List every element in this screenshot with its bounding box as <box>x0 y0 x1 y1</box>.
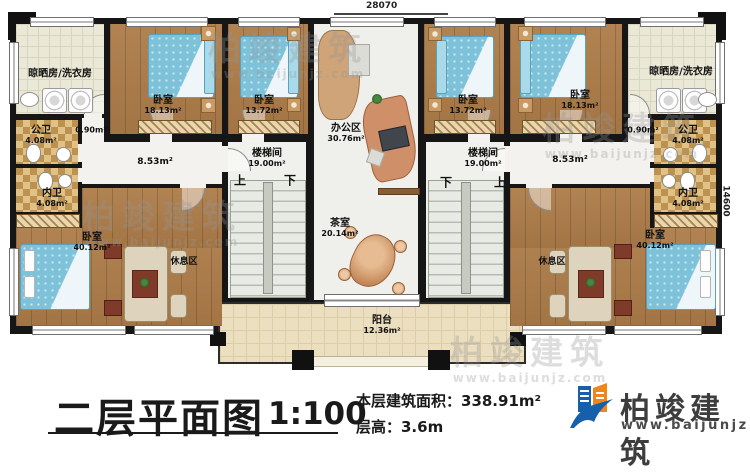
room-label-bedroom-18-left: 卧室 18.13m² <box>144 95 181 115</box>
room-label-master-right: 卧室 40.12m² <box>636 230 673 250</box>
window <box>134 325 214 335</box>
window <box>9 42 19 104</box>
floor-plan-page: { "dimensions": { "top_width": "28070", … <box>0 0 750 444</box>
window <box>30 17 94 27</box>
laundry-sink-icon <box>20 92 39 107</box>
brand-logo-icon <box>566 378 616 438</box>
room-label-balcony: 阳台 12.36m² <box>363 315 400 335</box>
closet-right <box>654 214 718 228</box>
room-label-public-bath-left: 公卫 4.08m² <box>25 125 57 145</box>
tv-cabinet-icon <box>614 244 632 259</box>
room-label-laundry-right: 晾晒房/洗衣房 <box>649 66 713 78</box>
nightstand-icon <box>428 27 442 41</box>
room-label-master-left: 卧室 40.12m² <box>73 232 110 252</box>
window <box>238 17 300 27</box>
door-opening <box>84 114 102 118</box>
room-label-inner-bath-right: 内卫 4.08m² <box>672 188 704 208</box>
bath-sink-icon <box>58 174 72 188</box>
washing-machine-icon <box>42 88 67 113</box>
stair-down-label: 下 <box>440 174 452 191</box>
room-label-office: 办公区 30.76m² <box>327 123 364 143</box>
room-label-rest-right: 休息区 <box>538 257 565 267</box>
wardrobe-icon <box>238 120 300 134</box>
dimension-top: 28070 <box>366 1 397 11</box>
plant-icon <box>586 278 595 287</box>
bed-pillow <box>24 276 35 298</box>
window <box>434 17 496 27</box>
plan-title: 二层平面图 <box>54 386 264 444</box>
room-label-laundry-left: 晾晒房/洗衣房 <box>28 68 92 80</box>
room-label-hall-left: 8.53m² <box>137 158 173 168</box>
tv-cabinet-icon <box>614 300 632 316</box>
window <box>330 17 404 27</box>
room-label-vestibule-right: 0.90m² <box>627 127 659 136</box>
floor-height-text: 层高：3.6m <box>356 416 443 437</box>
stair-up-label: 上 <box>234 172 246 189</box>
watermark: 柏竣建筑 www.baijunjz.com <box>420 336 640 387</box>
tv-cabinet-icon <box>104 300 122 316</box>
bed-pillow <box>700 250 711 272</box>
armchair-icon <box>170 294 187 318</box>
toilet-icon <box>26 144 41 163</box>
laundry-sink-icon <box>698 92 717 107</box>
column <box>292 350 314 370</box>
door-opening <box>242 134 264 142</box>
washing-machine-icon <box>68 88 93 113</box>
stair-rail-right <box>461 182 471 294</box>
bed-pillow <box>700 276 711 298</box>
nightstand-icon <box>428 98 442 112</box>
sliding-door <box>324 294 420 307</box>
window <box>640 17 704 27</box>
floor-area-text: 本层建筑面积：338.91m² <box>356 390 541 411</box>
room-label-vestibule-left: 0.90m² <box>75 127 107 136</box>
plant-icon <box>140 278 149 287</box>
room-label-inner-bath-left: 内卫 4.08m² <box>36 188 68 208</box>
nightstand-icon <box>518 98 533 113</box>
room-label-stairwell-left: 楼梯间 19.00m² <box>248 148 285 168</box>
bath-sink-icon <box>56 147 71 162</box>
nightstand-icon <box>287 98 301 112</box>
stair-up-label: 上 <box>494 174 506 191</box>
wardrobe-icon <box>434 120 496 134</box>
window <box>32 325 126 335</box>
tea-stool-icon <box>394 240 407 253</box>
bed-headboard <box>520 38 531 94</box>
plant-icon <box>372 94 382 104</box>
title-underline <box>48 432 338 434</box>
room-label-stairwell-right: 楼梯间 19.00m² <box>464 148 501 168</box>
door-opening <box>78 144 82 162</box>
nightstand-icon <box>518 26 533 41</box>
tea-stool-icon <box>392 282 405 295</box>
wardrobe-icon <box>138 120 212 134</box>
room-label-hall-right: 8.53m² <box>552 156 588 166</box>
stair-down-label: 下 <box>284 172 296 189</box>
room-label-tearoom: 茶室 20.14m² <box>321 218 358 238</box>
nightstand-icon <box>201 98 216 113</box>
window <box>126 17 208 27</box>
room-label-bedroom-13-left: 卧室 13.72m² <box>245 95 282 115</box>
room-label-bedroom-13-right: 卧室 13.72m² <box>449 95 486 115</box>
window <box>715 248 725 316</box>
room-label-public-bath-right: 公卫 4.08m² <box>672 125 704 145</box>
door-opening <box>468 134 490 142</box>
brand-url: www.baijunjz.com <box>621 418 750 433</box>
bed-headboard <box>436 40 447 94</box>
partition-shelf <box>378 188 420 195</box>
window <box>614 325 702 335</box>
dimension-line-top <box>334 13 448 15</box>
bed-pillow <box>24 250 35 272</box>
window <box>9 248 19 316</box>
dimension-right: 14600 <box>721 185 731 216</box>
tea-stool-icon <box>338 268 351 281</box>
door-opening <box>78 168 82 182</box>
door-opening <box>150 134 172 142</box>
plan-scale: 1:100 <box>268 396 367 432</box>
door-opening <box>650 168 654 182</box>
bath-sink-icon <box>662 174 676 188</box>
window <box>524 17 606 27</box>
window <box>715 42 725 104</box>
room-label-bedroom-18-right: 卧室 18.13m² <box>561 90 598 110</box>
room-label-rest-left: 休息区 <box>170 257 197 267</box>
armchair-icon <box>549 294 566 318</box>
watermark: 柏竣建筑 www.baijunjz.com <box>178 32 398 83</box>
